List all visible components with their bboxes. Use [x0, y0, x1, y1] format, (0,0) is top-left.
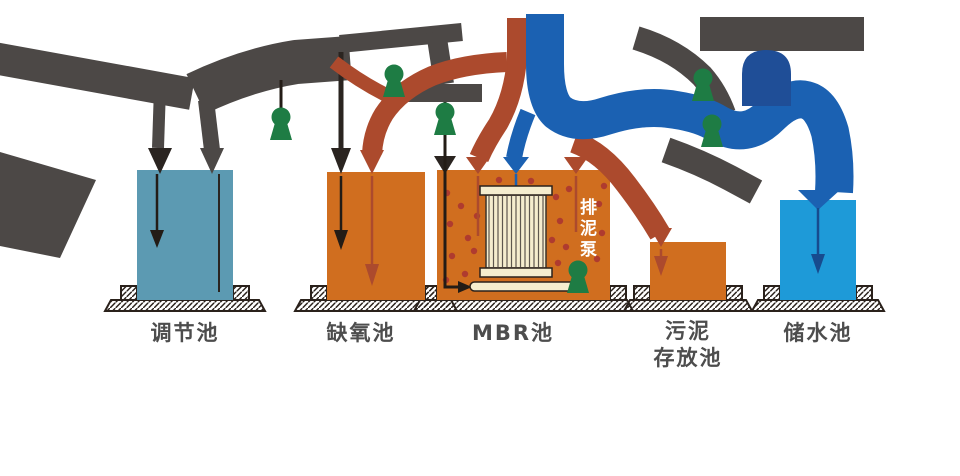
label-clean-water-tank: 储水池	[748, 320, 888, 347]
membrane-top-header	[480, 186, 552, 195]
foundation-slab	[752, 300, 884, 311]
process-flow-diagram: 调节池 缺氧池 MBR池 污泥 存放池 储水池 排泥泵	[0, 0, 960, 476]
foundation-slab	[105, 300, 265, 311]
anoxic-inlet-funnel	[331, 148, 351, 174]
foundation-slab	[624, 300, 752, 311]
equalization-inlet-drop	[158, 88, 160, 148]
membrane-bottom-header	[480, 268, 552, 277]
transfer-pipe-trunk	[196, 58, 350, 94]
foundation-block	[233, 286, 249, 300]
foundation-block	[311, 286, 327, 300]
foundation-block	[726, 286, 742, 300]
permeate-neck	[514, 112, 528, 158]
label-sludge-pump: 排泥泵	[574, 198, 599, 261]
foundation-block	[764, 286, 780, 300]
membrane-module	[480, 186, 552, 277]
influent-pipe-lower	[0, 152, 96, 258]
label-mbr-tank: MBR池	[443, 320, 583, 347]
foundation-block	[634, 286, 650, 300]
air-blower-pump	[434, 103, 456, 136]
label-sludge-storage-tank: 污泥 存放池	[627, 318, 749, 372]
foundation-block	[610, 286, 626, 300]
foundation-block	[121, 286, 137, 300]
pipe-arch	[742, 50, 791, 106]
transfer-pump	[270, 108, 292, 141]
foundation-block	[856, 286, 872, 300]
label-anoxic-tank: 缺氧池	[291, 320, 431, 347]
diagram-canvas	[0, 0, 960, 476]
anoxic-recirculation-funnel	[360, 150, 384, 174]
foundation-slab	[414, 300, 633, 311]
equalization-outlet-riser	[206, 100, 212, 150]
drain-pipe-right	[666, 150, 756, 192]
label-equalization-tank: 调节池	[115, 320, 255, 347]
recirculation-pump	[383, 65, 405, 98]
